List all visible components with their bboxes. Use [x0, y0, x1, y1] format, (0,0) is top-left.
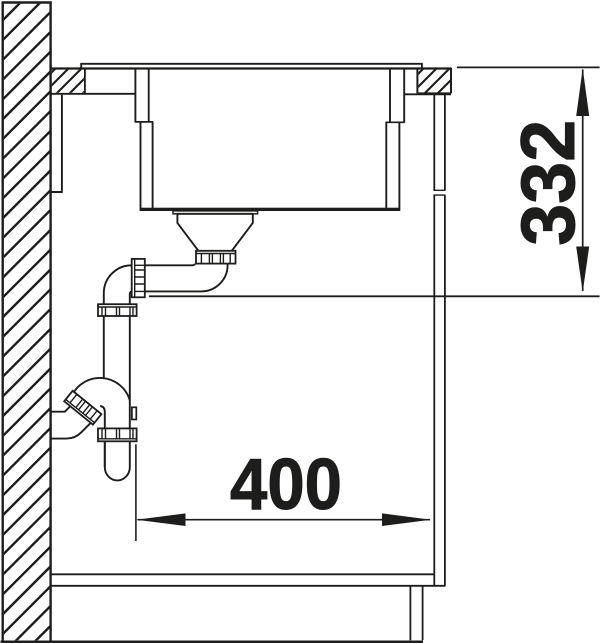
svg-text:332: 332 [506, 120, 591, 246]
svg-text:400: 400 [230, 444, 342, 525]
